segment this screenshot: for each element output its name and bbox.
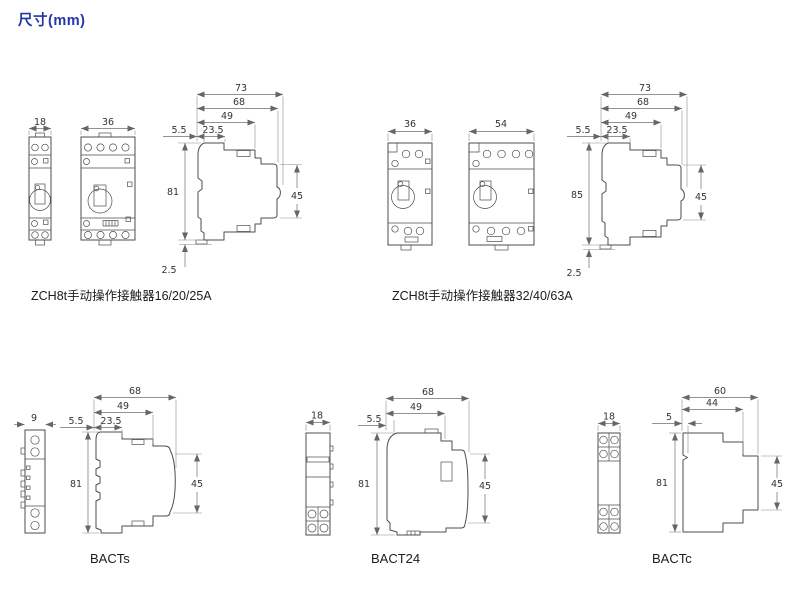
zch8t-16-20-25a-drawing: 18 36 (15, 70, 315, 285)
dim-2-5-label: 2.5 (161, 265, 176, 276)
dim-23-5-label: 23.5 (606, 125, 627, 136)
front-view-18mm: 18 (598, 412, 620, 534)
dim-front2-width-label: 36 (102, 117, 114, 128)
dim-44-label: 44 (706, 398, 718, 409)
dim-height-label: 81 (358, 479, 370, 490)
dim-5-5-label: 5.5 (575, 125, 590, 136)
dim-49-label: 49 (410, 402, 422, 413)
caption-bactc: BACTc (652, 551, 692, 566)
front-view-54mm: 54 (469, 119, 534, 250)
dim-front2-width-label: 54 (495, 119, 507, 130)
front-view-9mm: 9 (14, 413, 56, 533)
dim-front1-width-label: 36 (404, 119, 416, 130)
dim-68-label: 68 (129, 386, 141, 397)
dimensions-page: { "page": { "title": "尺寸(mm)" }, "colors… (0, 0, 800, 616)
side-view-bactc: 60 44 5 81 45 (652, 386, 783, 532)
side-view-bact24: 68 49 5.5 81 45 (358, 387, 491, 535)
dim-5-5-label: 5.5 (366, 414, 381, 425)
dim-front-width-label: 18 (311, 411, 323, 422)
dim-5-5-label: 5.5 (68, 416, 83, 427)
bact24-drawing: 18 68 49 5.5 81 45 (300, 380, 500, 550)
dim-23-5-label: 23.5 (100, 416, 121, 427)
dim-23-5-label: 23.5 (202, 125, 223, 136)
dim-45-label: 45 (771, 479, 783, 490)
caption-bacts: BACTs (90, 551, 130, 566)
dim-49-label: 49 (625, 111, 637, 122)
front-view-36mm: 36 (81, 117, 135, 245)
dim-front1-width-label: 18 (34, 117, 46, 128)
caption-bact24: BACT24 (371, 551, 420, 566)
side-view-zch8t-small: 73 68 49 23.5 5.5 81 45 2.5 (161, 83, 303, 276)
dim-73-label: 73 (235, 83, 247, 94)
dim-front-width-label: 9 (31, 413, 37, 424)
dim-49-label: 49 (221, 111, 233, 122)
dim-height-label: 81 (70, 479, 82, 490)
side-view-bacts: 68 49 23.5 5.5 81 45 (60, 386, 203, 533)
dim-45-label: 45 (695, 192, 707, 203)
dim-5-5-label: 5.5 (171, 125, 186, 136)
front-view-18mm: 18 (29, 117, 51, 245)
caption-zch8t-small: ZCH8t手动操作接触器16/20/25A (31, 285, 212, 304)
dim-2-5-label: 2.5 (566, 268, 581, 279)
bacts-drawing: 9 68 49 23.5 5.5 81 45 (10, 380, 255, 550)
dim-height-label: 85 (571, 190, 583, 201)
dim-height-label: 81 (656, 478, 668, 489)
zch8t-32-40-63a-drawing: 36 54 (375, 70, 720, 285)
page-title: 尺寸(mm) (18, 9, 85, 30)
dim-45-label: 45 (479, 481, 491, 492)
dim-73-label: 73 (639, 83, 651, 94)
dim-45-label: 45 (191, 479, 203, 490)
dim-49-label: 49 (117, 401, 129, 412)
bactc-drawing: 18 60 44 5 81 45 (590, 380, 795, 550)
caption-zch8t-large: ZCH8t手动操作接触器32/40/63A (392, 285, 573, 304)
side-view-zch8t-large: 73 68 49 23.5 5.5 85 45 2.5 (566, 83, 707, 279)
dim-68-label: 68 (233, 97, 245, 108)
dim-front-width-label: 18 (603, 412, 615, 423)
front-view-36mm: 36 (388, 119, 432, 250)
dim-5-label: 5 (666, 412, 672, 423)
dim-68-label: 68 (422, 387, 434, 398)
dim-60-label: 60 (714, 386, 726, 397)
front-view-18mm: 18 (306, 411, 333, 536)
dim-height-label: 81 (167, 187, 179, 198)
dim-45-label: 45 (291, 191, 303, 202)
dim-68-label: 68 (637, 97, 649, 108)
